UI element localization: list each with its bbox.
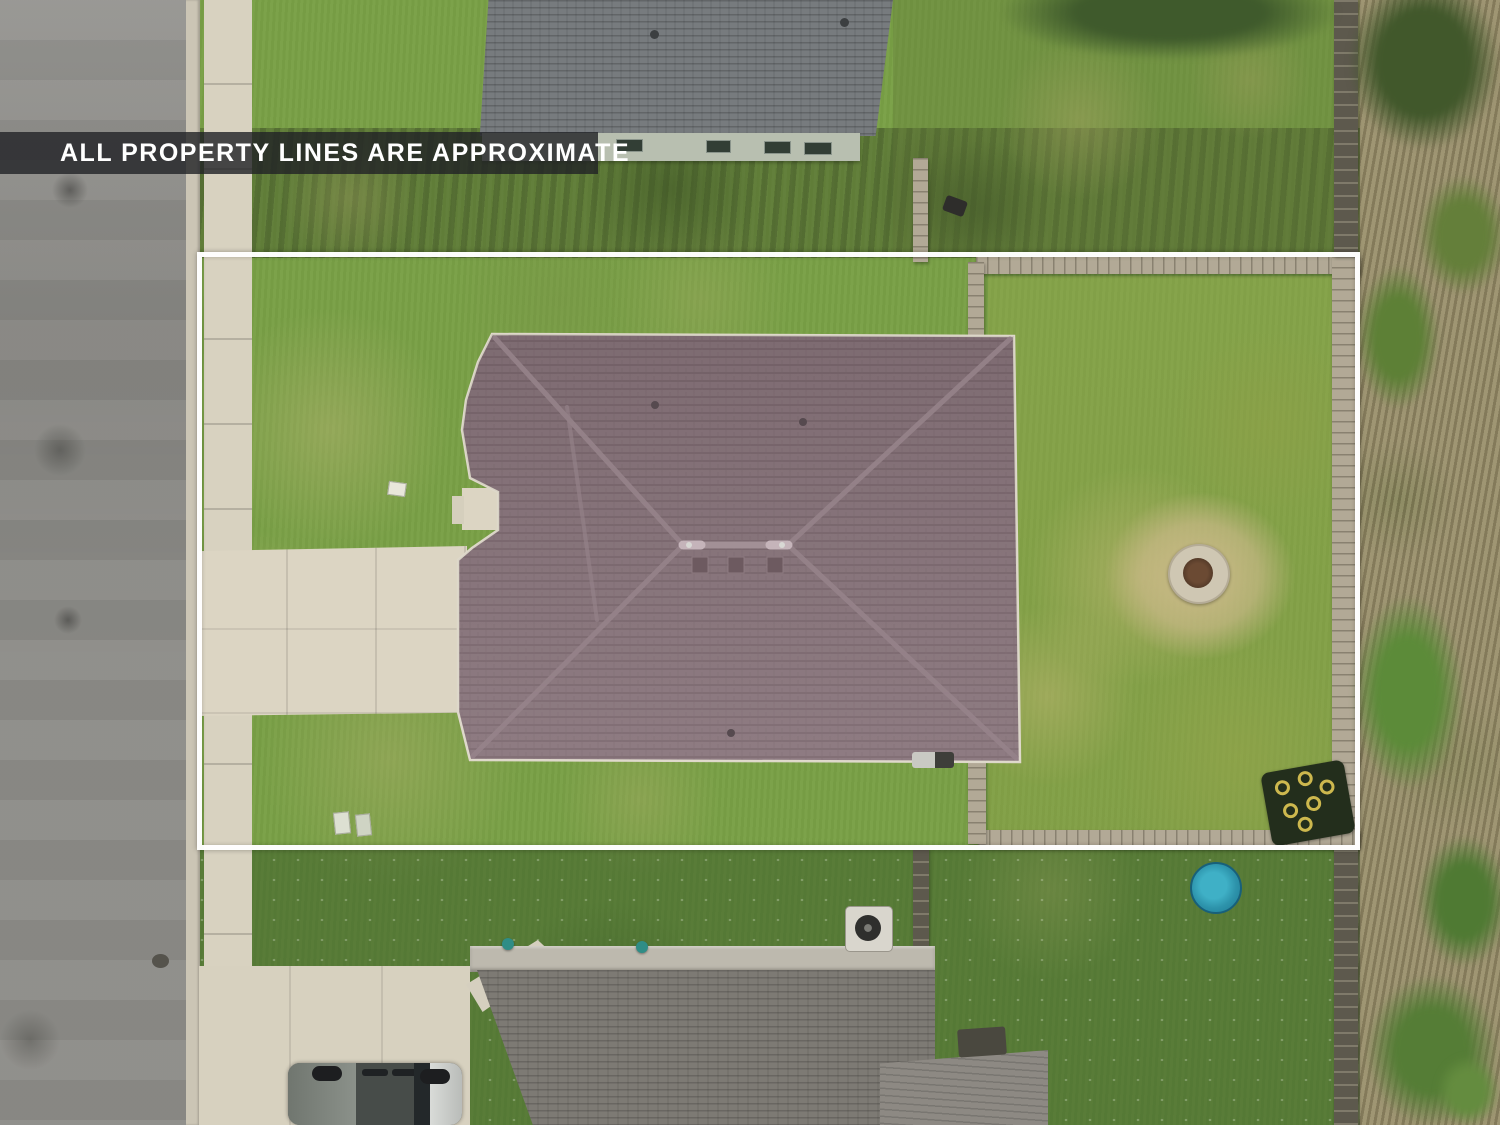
tree: [1418, 175, 1500, 295]
ac-unit: [845, 906, 893, 952]
tree: [1418, 835, 1500, 967]
manhole-cover: [152, 954, 169, 968]
tree: [1436, 1055, 1500, 1125]
disclaimer-text: ALL PROPERTY LINES ARE APPROXIMATE: [60, 139, 630, 167]
window: [804, 142, 832, 155]
property-line-overlay: [197, 252, 1360, 850]
kiddie-pool: [1190, 862, 1242, 914]
ac-fan: [855, 915, 881, 941]
roof-vent: [840, 18, 849, 27]
window: [764, 141, 791, 154]
ac-unit-dark: [957, 1026, 1007, 1057]
yard-pipe: [636, 941, 648, 953]
roof-vent: [650, 30, 659, 39]
truck-roof-rack: [362, 1069, 388, 1076]
tree: [1356, 265, 1440, 410]
truck-wheel: [312, 1066, 342, 1081]
truck-wheel: [420, 1069, 450, 1084]
yard-pipe: [502, 938, 514, 950]
top-neighbor-roof: [458, 0, 893, 136]
aerial-photo: ALL PROPERTY LINES ARE APPROXIMATE: [0, 0, 1500, 1125]
disclaimer-banner: ALL PROPERTY LINES ARE APPROXIMATE: [0, 132, 598, 174]
fence-east-lower: [1334, 850, 1358, 1125]
fence-top-neighbor: [913, 158, 928, 262]
window: [706, 140, 731, 153]
bottom-neighbor-roof: [477, 970, 935, 1125]
tree: [1352, 595, 1464, 790]
